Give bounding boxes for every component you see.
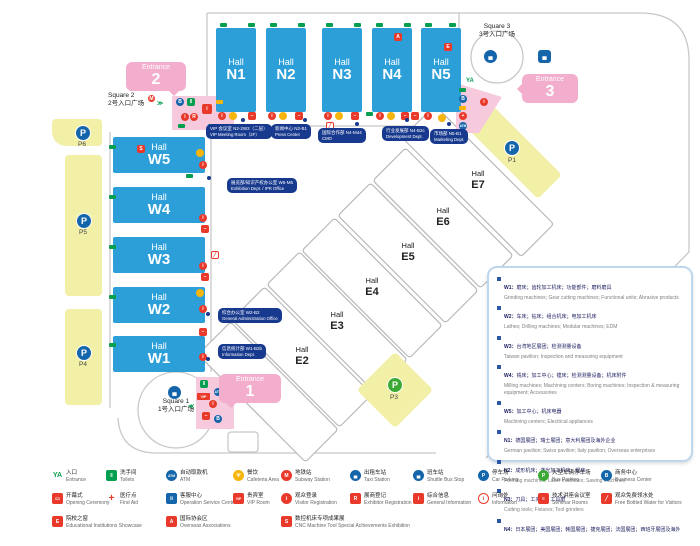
callout-dot [207,176,211,180]
bullet-icon [497,365,501,369]
callout-dot [206,312,210,316]
legend-entry-n2: N2：成形机床；激光加工机床；锯床Forming machines; Laser… [497,458,685,484]
hall-n4: HallN4 [372,28,412,112]
legend-entry-w1: W1：磨床；齿轮加工机床；功能部件；磨料磨具Grinding machines;… [497,275,685,301]
hall-w2: HallW2 [113,287,205,323]
legend-en: Taiwan pavilion; Inspection and measurin… [504,354,623,360]
legend-en: Subway Station [295,477,330,483]
cafeteria-marker-icon [216,100,223,104]
legend-item-visitor-registration: i观众登录Visitor Registration [281,493,337,506]
toilet-marker-icon [109,145,116,149]
cnc-achievements-marker-icon: S [137,145,145,153]
cafeteria-icon [229,112,237,120]
information-icon: i [199,161,207,169]
legend-en: Seminar Rooms [552,500,591,506]
hall-e7-label: HallE7 [458,170,498,191]
legend-en: Educational Institutions Showcase [66,523,142,529]
hall-e7-word: Hall [458,170,498,179]
label-development-dept: 行业发展部 N4-B2cDevelopment Dept. [382,126,429,141]
business-center-icon: B [459,95,467,103]
toilet-marker-icon [376,23,383,27]
label-dev-en: Development Dept. [386,134,425,140]
no-entry-icon: – [295,112,303,120]
legend-en: Cutting tools; Fixtures; Tool grinders [504,507,584,513]
legend-item-business-center: B商务中心Business Center [601,470,652,483]
hall-e4-label: HallE4 [352,277,392,298]
bullet-icon [497,336,501,340]
hall-n3-code: N3 [332,67,351,84]
hall-e2-code: E2 [282,355,322,367]
information-icon: i [478,493,489,504]
toilet-marker-icon [220,23,227,27]
no-entry-icon: – [248,112,256,120]
hall-e4-code: E4 [352,286,392,298]
information-icon: i [376,112,384,120]
legend-entry-w4: W4：铣床；加工中心；镗床；检测测量设备；机床附件Milling machine… [497,363,685,396]
exhibitor-registration-icon: R [350,493,361,504]
legend-zh: 综合信息 [427,493,471,500]
legend-en: Milling machines; Machining centers; Bor… [504,383,685,396]
first-aid-icon: + [106,493,117,504]
legend-zh: 停车场 [492,470,518,477]
seminar-rooms-icon: ≡ [538,493,549,504]
hall-n1-code: N1 [226,67,245,84]
toilets-icon: ‖ [200,380,208,388]
callout-dot [241,118,245,122]
legend-zh: 加工中心；机床电器 [517,409,562,415]
vip-room-icon: VIP [197,393,210,400]
information-icon: i [268,112,276,120]
overseas-associations-icon: A [166,516,177,527]
information-icon: i [424,112,432,120]
hall-n2: HallN2 [266,28,306,112]
legend-item-cafeteria: Ψ餐饮Cafeteria Area [233,470,279,483]
parking-icon-p6: P [75,125,91,141]
cafeteria-icon [387,112,395,120]
legend-en: Grinding machines; Gear cutting machines… [504,295,679,301]
toilet-marker-icon [326,23,333,27]
legend-en: Operation Service Centre [180,500,236,506]
legend-zh: 问询处 [492,493,517,500]
legend-item-car-parking: P停车场Car Parking [478,470,518,483]
label-info-zh: 信息统计部 W1-B2b [222,346,262,352]
legend-zh: 贵宾室 [247,493,270,500]
square3-en: Square 3 [484,23,510,30]
legend-zh: 车床；钻床；组合机床；电加工机床 [517,314,597,320]
legend-code: N1： [504,438,515,444]
legend-zh: 地铁站 [295,470,330,477]
label-marketing-dept: 市场部 N5-B1Marketing Dept. [430,129,468,144]
bullet-icon [497,401,501,405]
square2-zh: 2号入口广场 [108,100,144,107]
legend-item-opening-ceremony: ▭开幕式Opening Ceremony [52,493,109,506]
cafeteria-icon [196,289,204,297]
visitor-registration-icon: i [281,493,292,504]
information-icon: i [199,262,207,270]
callout-dot [405,118,409,122]
overseas-associations-marker-icon: A [394,33,402,41]
hall-e3-word: Hall [317,311,357,320]
cafeteria-icon [438,114,446,122]
toilet-marker-icon [404,23,411,27]
label-ipr-en: Exhibition Dept. / IPR Office [231,186,293,192]
parking-label-p5: P5 [79,229,87,236]
legend-zh: 院校之窗 [66,516,142,523]
toilet-marker-icon [248,23,255,27]
business-center-icon: B [601,470,612,481]
no-entry-icon: – [202,412,210,420]
opening-ceremony-icon: ▭ [52,493,63,504]
cafeteria-icon [335,112,343,120]
operation-service-icon: ii [166,493,177,504]
entrance-2-balloon: Entrance2 [126,62,186,91]
bus-parking-icon: P [538,470,549,481]
hall-e5-label: HallE5 [388,242,428,263]
legend-zh: 铣床；加工中心；镗床；检测测量设备；机床附件 [517,373,627,379]
educational-showcase-icon: E [52,516,63,527]
legend-code: W4： [504,373,517,379]
toilet-marker-icon [109,195,116,199]
legend-zh: 自动取款机 [180,470,208,477]
general-information-icon: i [413,493,424,504]
shuttle-bus-icon: ▄ [413,470,424,481]
educational-showcase-marker-icon: E [444,43,452,51]
vip-room-icon: VIP [233,493,244,504]
label-ipr-zh: 展览部/知识产权办公室 W5-M5 [231,180,293,186]
hall-e3-label: HallE3 [317,311,357,332]
information-icon: i [324,112,332,120]
legend-item-taxi: ▄出租车站Taxi Station [350,470,390,483]
toilet-marker-icon [109,295,116,299]
cnc-achievements-icon: S [281,516,292,527]
toilet-marker-icon [425,23,432,27]
legend-zh: 大型车辆停车场 [552,470,591,477]
callout-dot [303,118,307,122]
legend-zh: 观众登录 [295,493,337,500]
bullet-icon [497,519,501,523]
hall-n5: HallN5 [421,28,461,112]
legend-item-overseas-associations: A国际协会区Overseas Associations [166,516,231,529]
taxi-icon: ▄ [484,50,497,63]
legend-zh: 商务中心 [615,470,652,477]
hall-w4-code: W4 [148,202,171,219]
first-aid-icon: + [459,112,467,120]
parking-icon-p3: P [387,377,403,393]
entrance-gate-icon: YA [466,78,474,84]
callout-dot [355,122,359,126]
label-general-administration: 综合办公室 W2-B2General Administration Office [218,308,282,323]
toilets-icon: ‖ [106,470,117,481]
taxi-icon: ▄ [168,386,181,399]
legend-item-entrance: YA入口Entrance [52,470,86,483]
bullet-icon [497,306,501,310]
legend-zh: 技术讲座会议室 [552,493,591,500]
legend-zh: 数控机床专项成果展 [295,516,410,523]
legend-zh: 台湾地区展团；检测测量设备 [517,344,582,350]
legend-zh: 餐饮 [247,470,279,477]
legend-zh: 班车站 [427,470,464,477]
hall-n3: HallN3 [322,28,362,112]
square2-en: Square 2 [108,92,134,99]
cafeteria-icon: Ψ [233,470,244,481]
parking-label-p3: P3 [390,394,398,401]
legend-item-toilets: ‖洗手间Toilets [106,470,137,483]
toilet-marker-icon [459,88,466,92]
label-press-en: Press Center [275,132,307,138]
toilet-marker-icon [449,23,456,27]
square1-en: Square 1 [163,398,189,405]
hall-w3: HallW3 [113,237,205,273]
toilet-marker-icon [354,23,361,27]
legend-item-exhibitor-registration: R展商登记Exhibitor Registration [350,493,412,506]
legend-en: Bus Parking [552,477,591,483]
legend-zh: 磨床；齿轮加工机床；功能部件；磨料磨具 [517,285,612,291]
information-icon: i [209,400,217,408]
hall-e2-label: HallE2 [282,346,322,367]
legend-code: W3： [504,344,517,350]
hall-e6-label: HallE6 [423,207,463,228]
hall-w4: HallW4 [113,187,205,223]
legend-en: General Information [427,500,471,506]
legend-en: Cafeteria Area [247,477,279,483]
hall-e7-code: E7 [458,179,498,191]
hall-w1-code: W1 [148,351,171,368]
label-cmo-zh: 国际合作部 N4-M44 [322,130,362,136]
legend-en: German pavilion; Swiss pavilion; Italy p… [504,448,655,454]
legend-item-cnc-achievements: S数控机床专项成果展CNC Machine Tool Special Achie… [281,516,410,529]
legend-item-subway: M地铁站Subway Station [281,470,330,483]
label-dev-zh: 行业发展部 N4-B2c [386,128,425,134]
subway-icon: M [281,470,292,481]
hall-w5: HallW5 [113,137,205,173]
legend-code: W1： [504,285,517,291]
legend-entry-n4: N4：日本展团；美国展团；韩国展团；捷克展团；法国展团；西班牙展团及海外企业Ja… [497,517,685,546]
hall-e4-word: Hall [352,277,392,286]
direction-arrows-icon: ≫ [157,101,163,107]
parking-icon-p1: P [504,140,520,156]
parking-icon-p5: P [76,213,92,229]
cafeteria-icon [196,149,204,157]
legend-zh: 国际协会区 [180,516,231,523]
label-vip-zh: VIP 会议室 N2-2W2（二层） [210,126,268,132]
information-icon: i [199,214,207,222]
cafeteria-marker-icon [459,106,466,110]
service-building-outline [228,432,258,452]
no-entry-icon: – [201,273,209,281]
car-parking-icon: P [478,470,489,481]
callout-dot [206,357,210,361]
bullet-icon [497,460,501,464]
legend-en: Opening Ceremony [66,500,109,506]
label-mkt-zh: 市场部 N5-B1 [434,131,464,137]
legend-en: Free Bottled Water for Visitors [615,500,682,506]
legend-zh: 入口 [66,470,86,477]
toilet-marker-icon [109,343,116,347]
label-admin-en: General Administration Office [222,316,278,322]
legend-en: Machining centers; Electrical appliances [504,419,593,425]
entrance-3-number: 3 [528,84,572,101]
no-entry-icon: – [201,225,209,233]
legend-en: Lathes; Drilling machines; Modular machi… [504,324,617,330]
legend-en: Business Center [615,477,652,483]
legend-zh: 洗手间 [120,470,137,477]
toilet-marker-icon [109,245,116,249]
entrance-gate-icon: YA [52,470,63,481]
legend-zh: 客服中心 [180,493,236,500]
legend-code: W2： [504,314,517,320]
business-center-icon: B [214,415,222,423]
legend-item-first-aid: +医疗点First Aid [106,493,138,506]
legend-item-vip-room: VIP贵宾室VIP Room [233,493,270,506]
legend-en: Information [492,500,517,506]
label-info-en: Information Dept. [222,352,262,358]
legend-en: Car Parking [492,477,518,483]
legend-item-information: i问询处Information [478,493,517,506]
bullet-icon [497,430,501,434]
visitor-registration-icon: i [181,113,189,121]
bullet-icon [497,277,501,281]
no-entry-icon: – [351,112,359,120]
information-icon: i [480,98,488,106]
no-entry-icon: – [199,328,207,336]
shuttle-bus-icon: ▄ [538,50,551,63]
label-press-zh: 新闻中心 N2-B1 [275,126,307,132]
hall-contents-legend: W1：磨床；齿轮加工机床；功能部件；磨料磨具Grinding machines;… [487,266,693,462]
legend-zh: 医疗点 [120,493,138,500]
label-information-dept: 信息统计部 W1-B2bInformation Dept. [218,344,266,359]
hall-e6-word: Hall [423,207,463,216]
hall-n2-code: N2 [276,67,295,84]
hall-w5-code: W5 [148,152,171,169]
parking-label-p6: P6 [78,141,86,148]
legend-entry-w3: W3：台湾地区展团；检测测量设备Taiwan pavilion; Inspect… [497,334,685,360]
toilet-marker-icon [270,23,277,27]
hall-e6-code: E6 [423,216,463,228]
legend-en: Overseas Associations [180,523,231,529]
legend-item-atm: ATM自动取款机ATM [166,470,208,483]
atm-icon: ATM [166,470,177,481]
entrance-2-number: 2 [132,72,180,89]
hall-w1: HallW1 [113,336,205,372]
hall-w3-code: W3 [148,252,171,269]
direction-arrows-icon: ≪ [188,404,194,410]
legend-en: CNC Machine Tool Special Achievements Ex… [295,523,410,529]
legend-zh: 展商登记 [364,493,412,500]
registration-pen-icon: ╱ [211,251,219,259]
label-vip-meeting-room: VIP 会议室 N2-2W2（二层）VIP Meeting Room（2F） [206,124,272,139]
legend-item-bus-parking: P大型车辆停车场Bus Parking [538,470,591,483]
toilet-marker-icon [186,174,193,178]
legend-zh: 日本展团；美国展团；韩国展团；捷克展团；法国展团；西班牙展团及海外企业 [504,527,680,546]
free-water-icon: ╱ [601,493,612,504]
exhibitor-registration-icon: R [190,113,198,121]
legend-en: Visitor Registration [295,500,337,506]
hall-e5-code: E5 [388,251,428,263]
legend-en: Shuttle Bus Stop [427,477,464,483]
toilet-marker-icon [366,112,373,116]
hall-e3-code: E3 [317,320,357,332]
toilet-marker-icon [298,23,305,27]
label-press-center: 新闻中心 N2-B1Press Center [271,124,311,139]
legend-en: Exhibitor Registration [364,500,412,506]
legend-item-educational-showcase: E院校之窗Educational Institutions Showcase [52,516,142,529]
parking-label-p1: P1 [508,157,516,164]
legend-en: Toilets [120,477,137,483]
entrance-1-number: 1 [225,384,275,401]
legend-en: ATM [180,477,208,483]
label-mkt-en: Marketing Dept. [434,137,464,143]
label-cmo: 国际合作部 N4-M44CMO [318,128,366,143]
hall-w2-code: W2 [148,302,171,319]
entrance-3-balloon: Entrance3 [522,74,578,103]
toilets-icon: ‖ [187,98,195,106]
hall-e2-word: Hall [282,346,322,355]
taxi-icon: ▄ [350,470,361,481]
legend-entry-w5: W5：加工中心；机床电器Machining centers; Electrica… [497,399,685,425]
parking-icon-p4: P [76,345,92,361]
legend-item-free-water: ╱观众免费领水处Free Bottled Water for Visitors [601,493,682,506]
subway-icon: M [148,95,155,102]
legend-en: First Aid [120,500,138,506]
legend-en: VIP Room [247,500,270,506]
toilet-marker-icon [178,124,185,128]
cafeteria-icon [279,112,287,120]
legend-code: W5： [504,409,517,415]
legend-zh: 开幕式 [66,493,109,500]
legend-item-seminar-rooms: ≡技术讲座会议室Seminar Rooms [538,493,591,506]
label-exhibition-dept-ipr: 展览部/知识产权办公室 W5-M5Exhibition Dept. / IPR … [227,178,297,193]
general-information-icon: i [202,104,212,114]
venue-map-page: P P6 P P5 P P4 P P1 P P3 HallN1 HallN2 H… [0,0,700,546]
legend-code: N4： [504,527,515,533]
hall-e5-word: Hall [388,242,428,251]
hall-n5-code: N5 [431,67,450,84]
callout-dot [447,122,451,126]
legend-item-general-information: i综合信息General Information [413,493,471,506]
square3-zh: 3号入口广场 [479,31,515,38]
parking-label-p4: P4 [79,361,87,368]
legend-entry-n1: N1：德国展团；瑞士展团；意大利展团及海外企业German pavilion; … [497,428,685,454]
label-vip-en: VIP Meeting Room（2F） [210,132,268,138]
legend-item-shuttle-bus: ▄班车站Shuttle Bus Stop [413,470,464,483]
legend-item-operation-service: ii客服中心Operation Service Centre [166,493,236,506]
information-icon: i [218,112,226,120]
square3-label: Square 33号入口广场 [462,23,532,40]
label-cmo-en: CMO [322,136,362,142]
entrance-1-balloon: Entrance1 [219,374,281,403]
legend-zh: 出租车站 [364,470,390,477]
legend-en: Taxi Station [364,477,390,483]
no-entry-icon: – [411,112,419,120]
legend-entry-w2: W2：车床；钻床；组合机床；电加工机床Lathes; Drilling mach… [497,304,685,330]
hall-n4-code: N4 [382,67,401,84]
legend-zh: 观众免费领水处 [615,493,682,500]
legend-en: Entrance [66,477,86,483]
legend-zh: 德国展团；瑞士展团；意大利展团及海外企业 [515,438,615,444]
